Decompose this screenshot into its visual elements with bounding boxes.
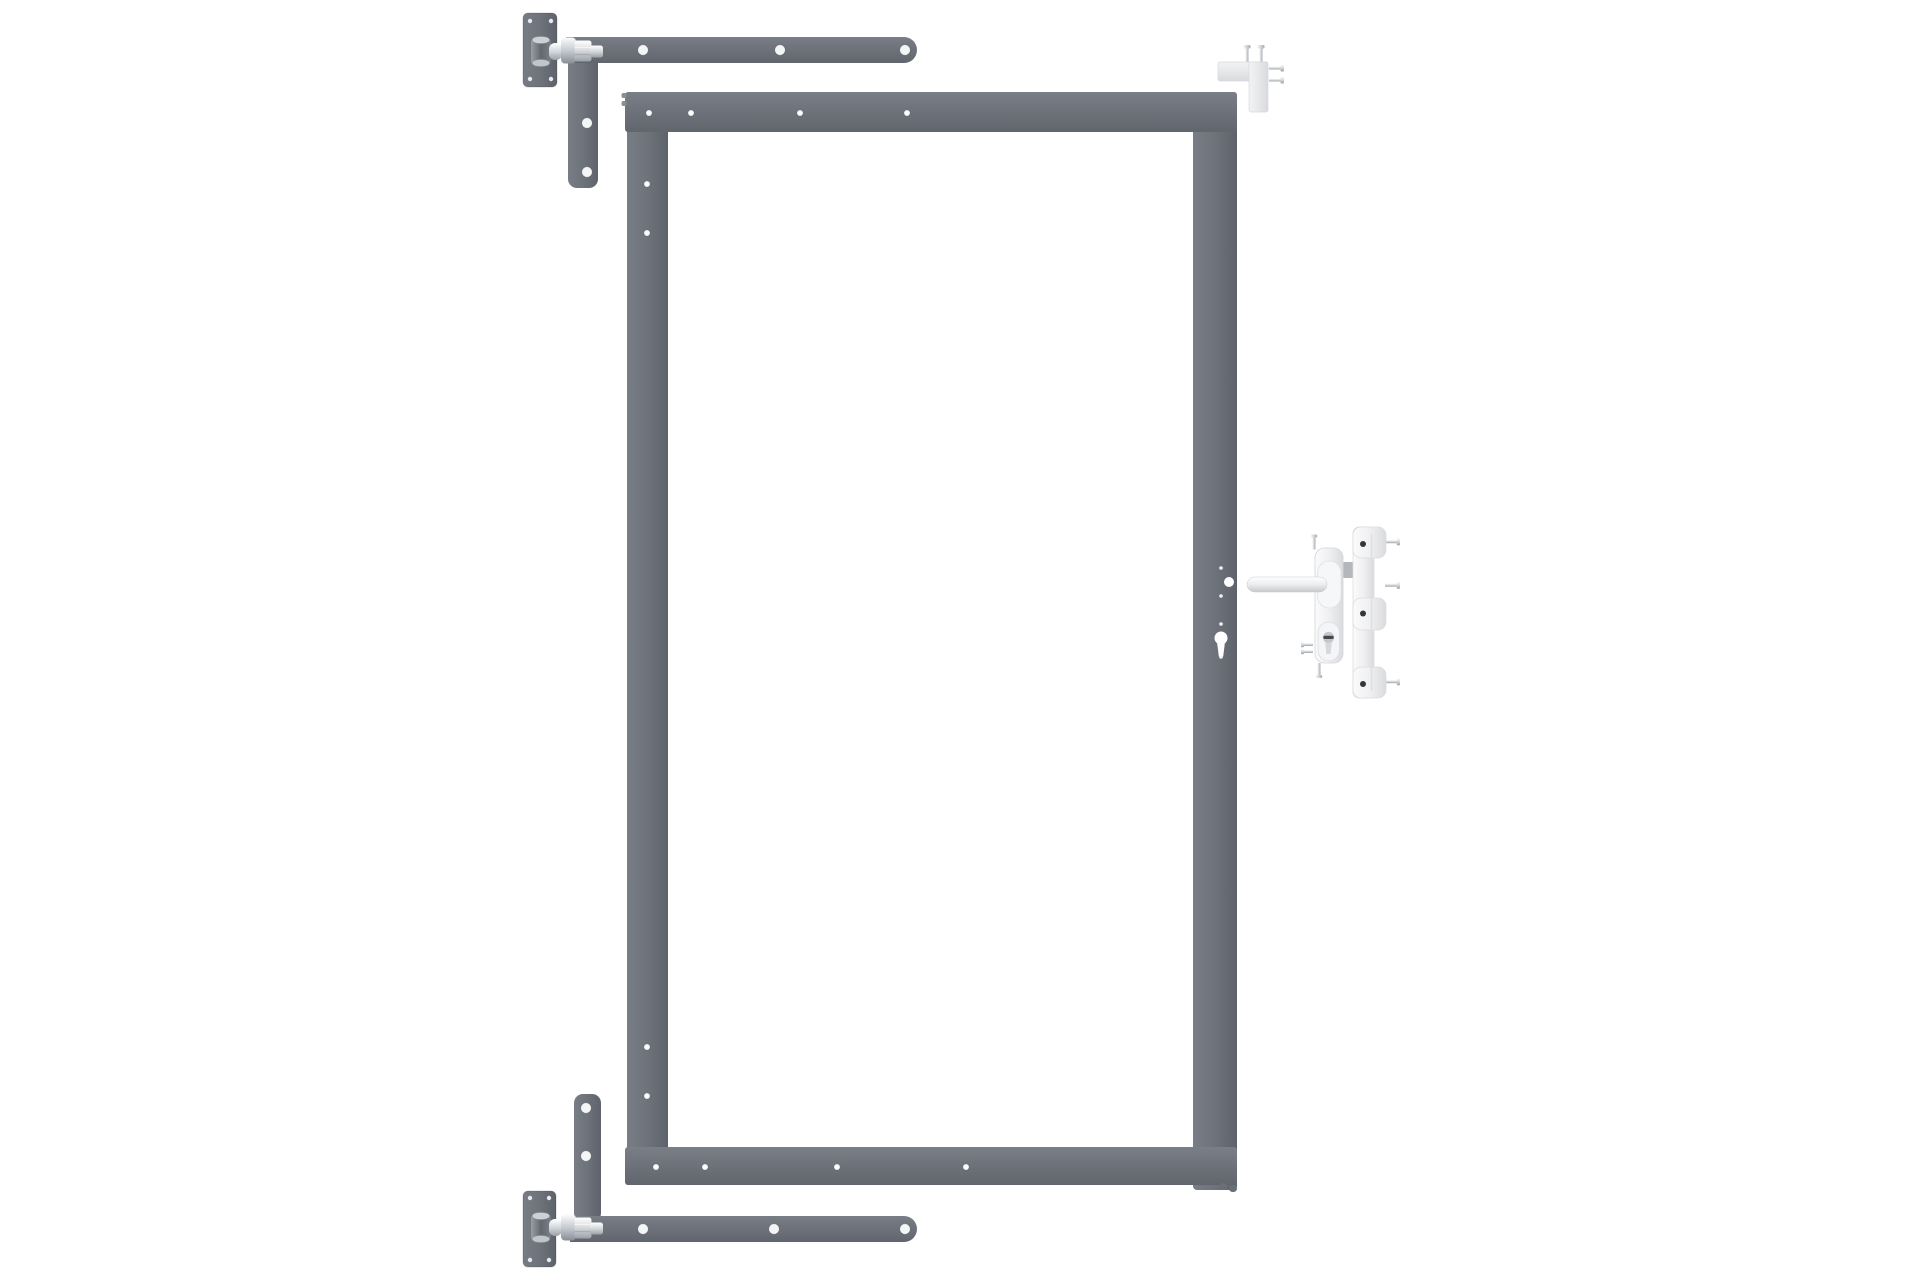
strap-hole <box>582 118 592 128</box>
knuckle-cap <box>533 37 550 44</box>
bracket-screw-head <box>1281 77 1285 84</box>
plate-hole <box>547 1196 551 1200</box>
strap-hole <box>581 1151 591 1161</box>
spindle-tab <box>1343 562 1353 578</box>
fixing-screw <box>1303 650 1314 653</box>
bracket-screw-head <box>1244 45 1251 49</box>
adjuster-pin <box>590 46 603 58</box>
adjuster-pin <box>590 1223 603 1235</box>
frame-hole <box>963 1164 969 1170</box>
frame-hole <box>702 1164 708 1170</box>
horizontal-strap <box>570 1216 917 1242</box>
strike-screw-head <box>1397 538 1400 545</box>
plate-hole <box>528 77 532 81</box>
lever-handle <box>1247 577 1327 592</box>
frame-hole <box>688 110 694 116</box>
fixing-screw-head <box>1316 675 1322 678</box>
plate-hole <box>547 1258 551 1262</box>
lock-prep-dot <box>1219 594 1223 598</box>
strike-screw-head <box>1397 582 1400 589</box>
top-rail <box>625 92 1237 132</box>
strike-screw-dot <box>1360 681 1366 687</box>
left-stile <box>627 92 668 1185</box>
key-slot <box>1323 636 1333 639</box>
strap-hole <box>638 1224 648 1234</box>
strike-screw <box>1385 540 1399 543</box>
gate-frame <box>622 92 1238 1192</box>
bracket-screw-head <box>1258 45 1265 49</box>
fixing-screw-head <box>1301 649 1304 654</box>
pivot-nub <box>622 93 627 98</box>
strap-hole <box>581 1103 591 1113</box>
adjuster-washer <box>561 1215 576 1241</box>
adjuster-hex-nut <box>575 41 592 62</box>
strike-screw <box>1385 680 1399 683</box>
bracket-vertical-leg <box>1249 62 1268 112</box>
knuckle-cap <box>533 1236 550 1243</box>
frame-hole <box>644 181 650 187</box>
frame-hole <box>797 110 803 116</box>
strap-hole <box>900 45 910 55</box>
plate-hole <box>549 77 553 81</box>
strike-screw <box>1385 584 1399 587</box>
plate-hole <box>549 19 553 23</box>
frame-hole <box>644 1093 650 1099</box>
fixing-screw <box>1313 537 1316 550</box>
strike-plate-lobe <box>1353 667 1386 698</box>
strike-plate-lobe <box>1353 598 1386 630</box>
pivot-nub <box>1229 1185 1237 1192</box>
frame-hole <box>646 110 652 116</box>
strap-hole <box>769 1224 779 1234</box>
adjuster-hex-nut <box>575 1218 592 1239</box>
strike-screw-dot <box>1360 541 1366 547</box>
strike-plate <box>1353 527 1400 698</box>
bracket-screw <box>1246 47 1249 62</box>
plate-hole <box>528 19 532 23</box>
strap-hole <box>638 45 648 55</box>
adjuster-collar <box>549 1219 562 1236</box>
fixing-screw-head <box>1311 535 1317 538</box>
bracket-screw <box>1269 67 1282 70</box>
pivot-nub <box>1219 1183 1227 1190</box>
strike-screw-dot <box>1360 611 1366 617</box>
fixing-screw <box>1303 643 1314 646</box>
lock-prep-dot <box>1219 622 1223 626</box>
strap-hole <box>582 167 592 177</box>
strike-screw-head <box>1397 678 1400 685</box>
adjuster-collar <box>549 43 562 60</box>
fixing-screw <box>1318 663 1321 677</box>
strap-hole <box>900 1224 910 1234</box>
horizontal-strap <box>566 37 917 63</box>
product-render-canvas <box>0 0 1920 1280</box>
strike-plate-lobe <box>1353 527 1386 558</box>
fixing-screw-head <box>1301 642 1304 647</box>
adjuster-washer <box>561 38 576 64</box>
bracket-screw-head <box>1281 65 1285 72</box>
bottom-rail <box>625 1147 1237 1185</box>
plate-hole <box>528 1196 532 1200</box>
frame-hole <box>644 230 650 236</box>
bracket-screw <box>1269 79 1282 82</box>
right-stile <box>1193 92 1237 1190</box>
lock-prep-dot <box>1219 566 1223 570</box>
vertical-strap <box>568 45 598 188</box>
spindle-hole <box>1224 577 1234 587</box>
bracket-screw <box>1260 47 1263 62</box>
frame-hole <box>653 1164 659 1170</box>
pivot-nub <box>622 101 627 106</box>
strap-hole <box>775 45 785 55</box>
gate-frame-kit-render <box>0 0 1920 1280</box>
plate-hole <box>528 1258 532 1262</box>
frame-hole <box>644 1044 650 1050</box>
lock-handle-set <box>1247 535 1353 679</box>
frame-hole <box>904 110 910 116</box>
knuckle-cap <box>533 1213 550 1220</box>
knuckle-cap <box>533 60 550 67</box>
frame-hole <box>834 1164 840 1170</box>
